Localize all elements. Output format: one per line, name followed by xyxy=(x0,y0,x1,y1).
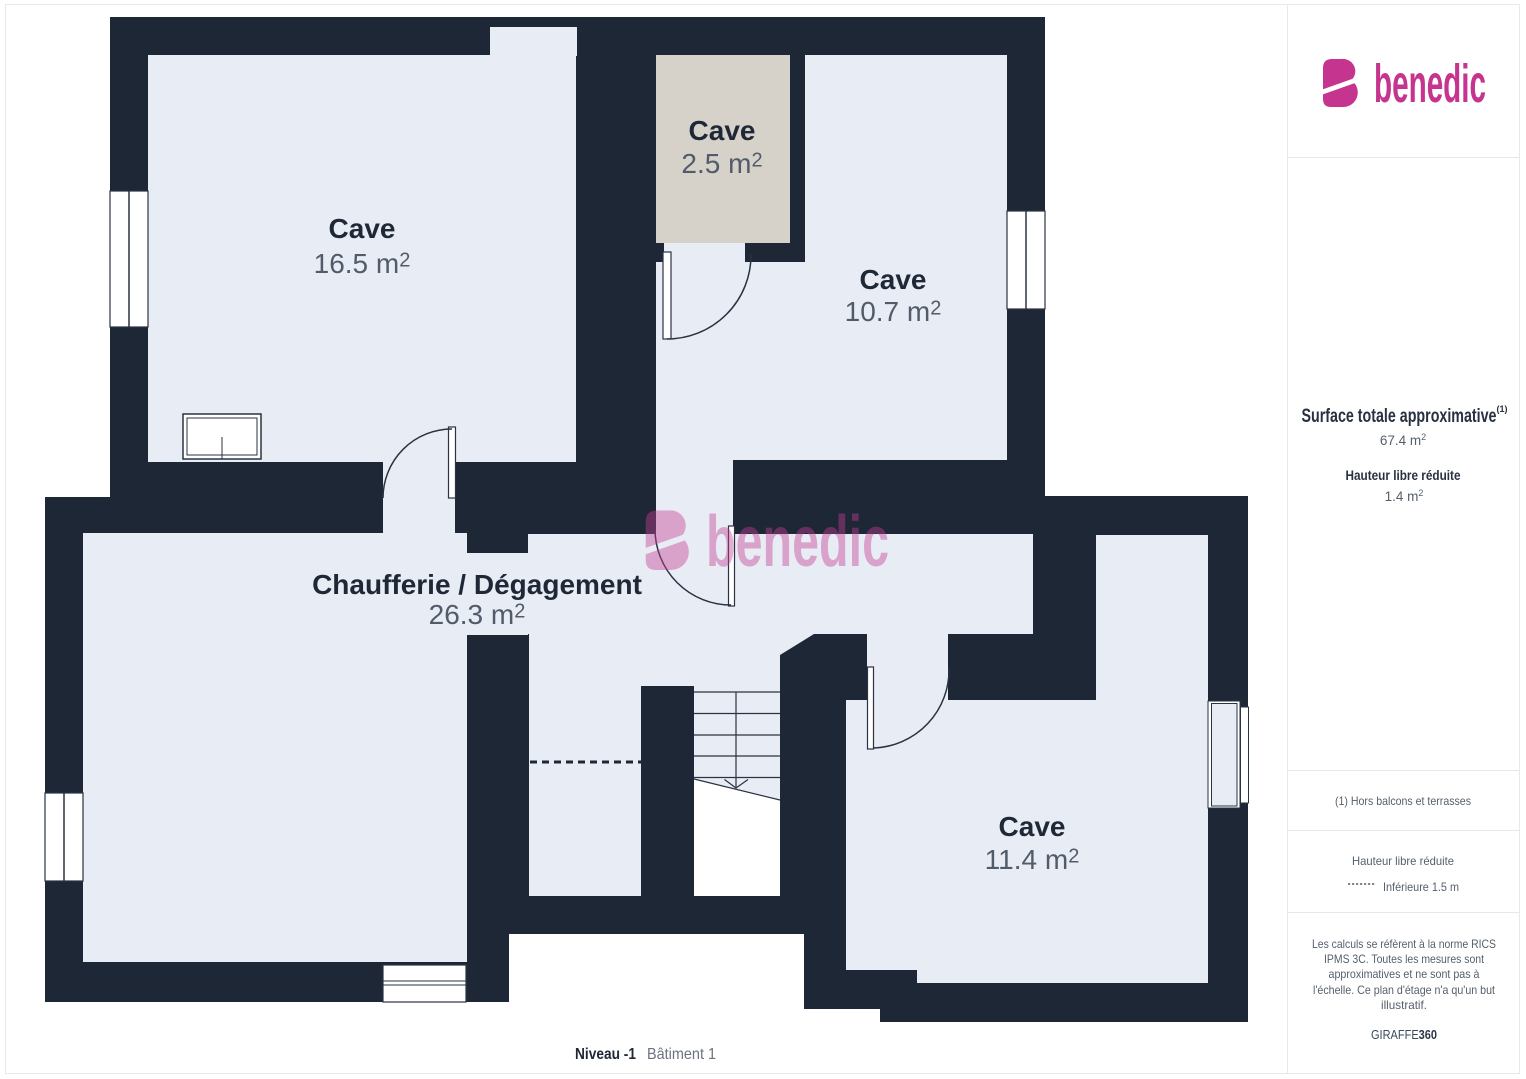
svg-text:Cave: Cave xyxy=(689,115,756,146)
svg-text:Bâtiment 1: Bâtiment 1 xyxy=(647,1046,716,1063)
svg-text:GIRAFFE360: GIRAFFE360 xyxy=(1371,1028,1437,1042)
svg-text:(1) Hors balcons et terrasses: (1) Hors balcons et terrasses xyxy=(1335,794,1471,808)
svg-text:10.7 m2: 10.7 m2 xyxy=(845,296,942,327)
svg-text:approximatives et ne sont pas: approximatives et ne sont pas à xyxy=(1329,967,1480,981)
svg-text:11.4 m2: 11.4 m2 xyxy=(985,844,1080,875)
svg-text:Cave: Cave xyxy=(329,213,396,244)
svg-text:(1): (1) xyxy=(1497,404,1508,414)
svg-text:illustratif.: illustratif. xyxy=(1381,998,1427,1012)
svg-text:Chaufferie / Dégagement: Chaufferie / Dégagement xyxy=(312,569,642,600)
svg-text:Inférieure 1.5 m: Inférieure 1.5 m xyxy=(1383,880,1459,894)
svg-text:benedic: benedic xyxy=(706,502,889,582)
svg-text:2.5 m2: 2.5 m2 xyxy=(681,148,762,179)
svg-text:Niveau -1: Niveau -1 xyxy=(575,1046,636,1063)
svg-text:l'échelle. Ce plan d'étage n'a: l'échelle. Ce plan d'étage n'a qu'un but xyxy=(1313,983,1496,997)
svg-text:Surface totale approximative: Surface totale approximative xyxy=(1302,406,1497,427)
svg-text:26.3 m2: 26.3 m2 xyxy=(429,599,526,630)
svg-text:67.4 m2: 67.4 m2 xyxy=(1380,432,1426,448)
svg-text:Cave: Cave xyxy=(999,811,1066,842)
svg-text:1.4 m2: 1.4 m2 xyxy=(1385,488,1424,504)
svg-text:16.5 m2: 16.5 m2 xyxy=(314,248,411,279)
svg-text:IPMS 3C. Toutes les mesures so: IPMS 3C. Toutes les mesures sont xyxy=(1324,952,1485,966)
svg-text:Les calculs se réfèrent à la n: Les calculs se réfèrent à la norme RICS xyxy=(1312,937,1496,951)
svg-text:benedic: benedic xyxy=(1374,54,1486,114)
svg-text:Hauteur libre réduite: Hauteur libre réduite xyxy=(1352,854,1454,868)
svg-text:Cave: Cave xyxy=(860,264,927,295)
svg-text:Hauteur libre réduite: Hauteur libre réduite xyxy=(1346,468,1461,483)
